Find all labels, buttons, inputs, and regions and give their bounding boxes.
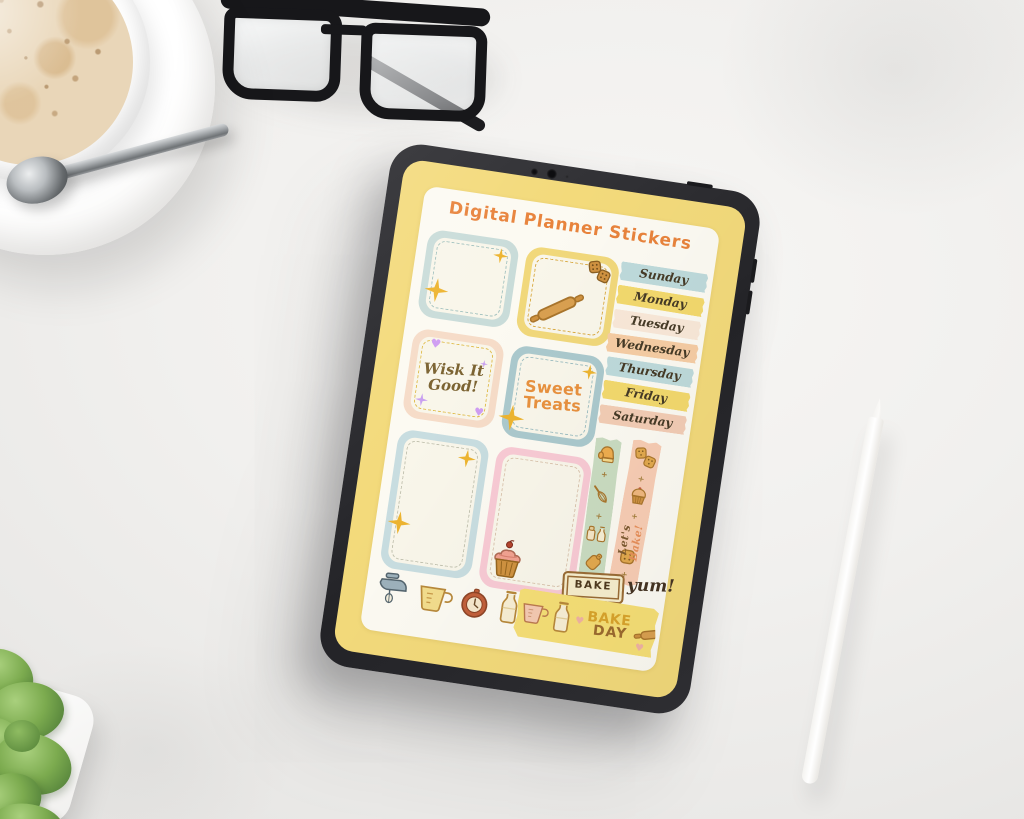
camera-dot-icon <box>546 168 557 179</box>
sticker-rolling-pin[interactable] <box>515 245 621 348</box>
tablet: Digital Planner Stickers <box>316 140 764 717</box>
yum-label: yum! <box>627 575 675 596</box>
glasses-right-lens <box>359 22 488 122</box>
plus-sparkle: + <box>637 475 645 484</box>
stylus-body <box>801 416 885 785</box>
succulent-bud <box>4 720 40 752</box>
heart-icon: ♥ <box>634 642 644 654</box>
lets-bake-label: Let's Bake! <box>616 522 646 549</box>
cookies-icon <box>585 258 615 290</box>
cupcake-icon <box>626 485 650 512</box>
sticker-blank-blue-tall[interactable] <box>379 428 491 580</box>
bake-day-banner-sticker[interactable]: ♥ BAKE DAY ♥ <box>512 588 660 658</box>
desk-scene: Digital Planner Stickers <box>0 0 1024 819</box>
cookies-icon <box>630 445 658 475</box>
stylus-pencil <box>799 397 888 793</box>
salt-and-milk-icon <box>584 522 609 549</box>
camera-dot-icon <box>565 175 568 178</box>
plus-sparkle: + <box>600 471 608 480</box>
heart-icon: ♥ <box>430 337 442 350</box>
spoon-handle <box>58 122 230 180</box>
sticker-sheet: Digital Planner Stickers <box>360 185 721 672</box>
glasses-bridge <box>321 24 367 36</box>
camera-dot-icon <box>531 167 539 175</box>
glasses <box>211 0 511 134</box>
milk-bottle-icon <box>549 600 575 639</box>
volume-button <box>745 290 753 314</box>
label-line: DAY <box>592 625 630 642</box>
oven-mitt-icon <box>595 443 618 469</box>
label-line: Good! <box>428 378 479 396</box>
power-button <box>687 181 713 189</box>
heart-icon: ♥ <box>574 616 584 627</box>
glasses-left-lens <box>222 6 343 102</box>
plus-sparkle: + <box>630 512 638 521</box>
sticker-label: Sweet Treats <box>502 347 603 446</box>
volume-button <box>750 259 758 283</box>
tablet-screen[interactable]: Digital Planner Stickers <box>332 158 748 700</box>
measuring-cup-icon[interactable] <box>414 581 455 620</box>
sticker-sweet-treats[interactable]: Sweet Treats <box>500 344 607 449</box>
succulent-plant <box>0 636 170 819</box>
sticker-blank-blue[interactable] <box>416 228 520 329</box>
sticker-wisk-it-good[interactable]: Wisk It Good! ♥ ♥ <box>401 327 505 430</box>
measuring-cup-icon <box>518 598 550 632</box>
label-line: Treats <box>523 394 582 414</box>
bake-day-label: BAKE DAY <box>585 611 632 642</box>
kitchen-timer-icon[interactable] <box>455 585 493 626</box>
sticker-label: Wisk It Good! <box>406 332 502 426</box>
cupcake-icon <box>486 537 528 586</box>
sticker-inner <box>424 236 512 321</box>
whisk-icon <box>587 480 616 512</box>
heart-icon: ♥ <box>473 406 484 418</box>
plus-sparkle: + <box>595 512 603 521</box>
hand-mixer-icon[interactable] <box>372 569 413 610</box>
